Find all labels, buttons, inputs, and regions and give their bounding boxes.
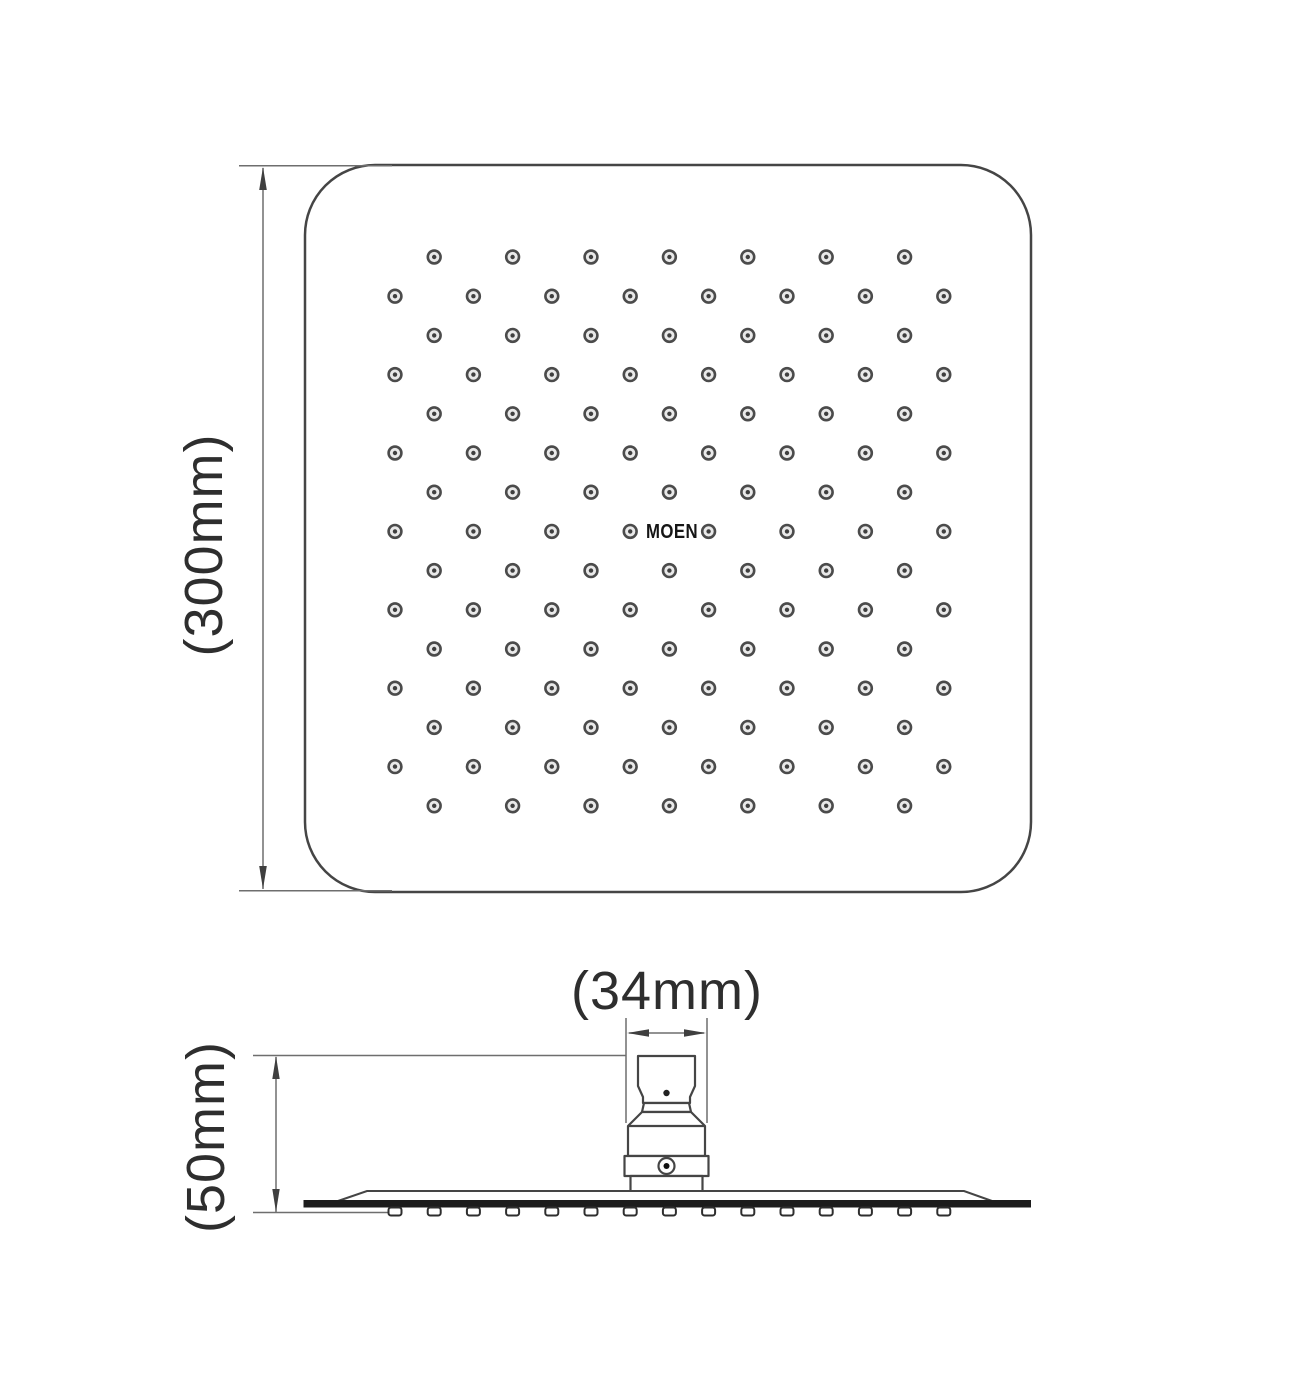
nozzle-dot-center — [393, 451, 397, 455]
nozzle-dot-center — [706, 451, 710, 455]
nozzle-dot-center — [667, 647, 671, 651]
nozzle-dot-center — [667, 255, 671, 259]
nozzle-dot-center — [667, 412, 671, 416]
nozzle-dot-center — [824, 725, 828, 729]
nozzle-dot-center — [942, 764, 946, 768]
showerhead-spec-drawing: MOEN (300mm) (34mm) (50m — [0, 0, 1300, 1386]
nozzle-dot-center — [785, 529, 789, 533]
nozzle-dot-center — [510, 647, 514, 651]
nozzle-dot-center — [510, 333, 514, 337]
nozzle-dot-center — [589, 412, 593, 416]
nozzle-dot-center — [628, 294, 632, 298]
plate-nozzle — [859, 1208, 872, 1216]
nozzle-dot-center — [942, 451, 946, 455]
nozzle-dot-center — [746, 255, 750, 259]
technical-drawing-page: MOEN (300mm) (34mm) (50m — [0, 0, 1300, 1386]
arrow-up-icon — [259, 167, 267, 190]
side-view: (34mm) (50mm) — [176, 961, 1031, 1233]
nozzle-dot-center — [393, 529, 397, 533]
nozzle-dot-center — [785, 372, 789, 376]
nozzle-dot-center — [393, 608, 397, 612]
nozzle-dot-center — [824, 255, 828, 259]
nozzle-dot-center — [550, 294, 554, 298]
nozzle-dot-center — [550, 608, 554, 612]
nozzle-dot-center — [510, 804, 514, 808]
nozzle-dot-center — [589, 725, 593, 729]
nozzle-dot-center — [785, 451, 789, 455]
dimension-label-34mm: (34mm) — [571, 961, 763, 1021]
nozzle-dot-center — [863, 529, 867, 533]
nozzle-dot-center — [432, 647, 436, 651]
arrow-right-icon — [684, 1029, 706, 1037]
nozzle-dot-center — [706, 764, 710, 768]
nozzle-dot-center — [393, 764, 397, 768]
plate-nozzle — [467, 1208, 480, 1216]
arrow-left-icon — [627, 1029, 649, 1037]
nozzle-dot-center — [706, 529, 710, 533]
nozzle-dot-center — [471, 529, 475, 533]
nozzle-dot-center — [432, 804, 436, 808]
plate-nozzle — [545, 1208, 558, 1216]
plate-front-edge — [304, 1200, 1032, 1208]
plate-nozzle — [937, 1208, 950, 1216]
nozzle-dot-center — [432, 725, 436, 729]
nozzle-dot-center — [432, 490, 436, 494]
plate-nozzle — [428, 1208, 441, 1216]
nozzle-dot-center — [432, 333, 436, 337]
plate-nozzle — [741, 1208, 754, 1216]
nozzle-dot-center — [863, 372, 867, 376]
connector-stem — [631, 1176, 703, 1192]
nozzle-dot-center — [863, 764, 867, 768]
nozzle-dot-center — [746, 412, 750, 416]
nozzle-dot-center — [589, 490, 593, 494]
nozzle-dot-center — [510, 412, 514, 416]
nozzle-dot-center — [510, 490, 514, 494]
top-view: MOEN (300mm) — [174, 165, 1031, 892]
nozzle-dot-center — [510, 725, 514, 729]
nozzle-dot-center — [628, 372, 632, 376]
nozzle-dot-center — [902, 804, 906, 808]
plate-nozzle — [624, 1208, 637, 1216]
plate-nozzle — [389, 1208, 402, 1216]
plate-nozzle — [702, 1208, 715, 1216]
nozzle-dot-center — [863, 294, 867, 298]
nozzle-dot-center — [667, 725, 671, 729]
plate-nozzle — [898, 1208, 911, 1216]
nozzle-dot-center — [785, 686, 789, 690]
nozzle-dot-center — [589, 333, 593, 337]
nozzle-dot-center — [589, 568, 593, 572]
nozzle-dot-center — [628, 529, 632, 533]
nozzle-dot-center — [589, 647, 593, 651]
arrow-down-icon — [259, 866, 267, 889]
nozzle-dot-center — [471, 764, 475, 768]
nozzle-dot-center — [942, 686, 946, 690]
nozzle-dot-center — [863, 451, 867, 455]
nozzle-dot-center — [550, 451, 554, 455]
nozzle-dot-center — [706, 686, 710, 690]
plate-nozzles — [389, 1208, 951, 1216]
nozzle-dot-center — [706, 372, 710, 376]
nozzle-dot-center — [863, 608, 867, 612]
nozzle-dot-center — [628, 451, 632, 455]
nozzle-dot-center — [902, 490, 906, 494]
nozzle-dot-center — [393, 686, 397, 690]
nozzle-dot-center — [432, 412, 436, 416]
nozzle-dot-center — [902, 647, 906, 651]
nozzle-dot-center — [471, 686, 475, 690]
nozzle-dot-center — [746, 725, 750, 729]
plate-top-edge — [338, 1191, 992, 1201]
nozzle-dot-center — [471, 608, 475, 612]
plate-nozzle — [585, 1208, 598, 1216]
dimension-label-50mm: (50mm) — [176, 1041, 236, 1233]
nozzle-dot-center — [667, 568, 671, 572]
nozzle-dot-center — [942, 372, 946, 376]
nozzle-dot-center — [824, 333, 828, 337]
nozzle-dot-center — [589, 255, 593, 259]
connector-neck — [642, 1103, 691, 1112]
nozzle-dot-center — [667, 490, 671, 494]
nozzle-dot-center — [746, 490, 750, 494]
nozzle-dot-center — [667, 804, 671, 808]
nozzle-dot-center — [432, 255, 436, 259]
nozzle-dot-center — [785, 608, 789, 612]
nozzle-dot-center — [432, 568, 436, 572]
plate-nozzle — [663, 1208, 676, 1216]
nozzle-dot-center — [589, 804, 593, 808]
nozzle-dot-center — [471, 294, 475, 298]
nozzle-dot-center — [785, 764, 789, 768]
face-plate-profile — [304, 1191, 1032, 1216]
nozzle-dot-center — [863, 686, 867, 690]
plate-nozzle — [820, 1208, 833, 1216]
nozzle-dot-center — [628, 686, 632, 690]
nozzle-dot-center — [942, 608, 946, 612]
nozzle-dot-center — [942, 529, 946, 533]
connector-assembly — [625, 1056, 709, 1192]
connector-flange — [628, 1112, 705, 1156]
brand-logo: MOEN — [646, 521, 698, 543]
nozzle-dot-center — [471, 372, 475, 376]
nozzle-dot-center — [824, 490, 828, 494]
nozzle-dot-center — [471, 451, 475, 455]
setscrew-dot — [664, 1163, 670, 1169]
nozzle-dot-center — [706, 294, 710, 298]
nozzle-dot-center — [902, 255, 906, 259]
connector-pivot-dot — [663, 1090, 669, 1096]
nozzle-dot-center — [393, 372, 397, 376]
nozzle-dot-center — [628, 764, 632, 768]
nozzle-dot-center — [902, 725, 906, 729]
nozzle-dot-center — [824, 412, 828, 416]
arrow-up-icon — [272, 1056, 279, 1079]
nozzle-dot-center — [824, 647, 828, 651]
nozzle-dot-center — [785, 294, 789, 298]
plate-nozzle — [781, 1208, 794, 1216]
nozzle-dot-center — [550, 764, 554, 768]
nozzle-dot-center — [510, 255, 514, 259]
nozzle-dot-center — [746, 804, 750, 808]
nozzle-dot-center — [628, 608, 632, 612]
nozzle-dot-center — [667, 333, 671, 337]
nozzle-dot-center — [746, 647, 750, 651]
nozzle-dot-center — [902, 412, 906, 416]
arrow-down-icon — [272, 1189, 279, 1212]
nozzle-dot-center — [746, 568, 750, 572]
nozzle-dot-center — [550, 529, 554, 533]
nozzle-dot-center — [746, 333, 750, 337]
nozzle-dot-center — [942, 294, 946, 298]
nozzle-dot-center — [510, 568, 514, 572]
nozzle-dot-center — [706, 608, 710, 612]
nozzle-dot-center — [824, 568, 828, 572]
nozzle-dot-center — [550, 686, 554, 690]
dimension-label-300mm: (300mm) — [174, 433, 234, 656]
plate-nozzle — [506, 1208, 519, 1216]
nozzle-dot-center — [824, 804, 828, 808]
nozzle-dot-center — [902, 333, 906, 337]
nozzle-dot-center — [550, 372, 554, 376]
nozzle-dot-center — [902, 568, 906, 572]
nozzle-dot-center — [393, 294, 397, 298]
